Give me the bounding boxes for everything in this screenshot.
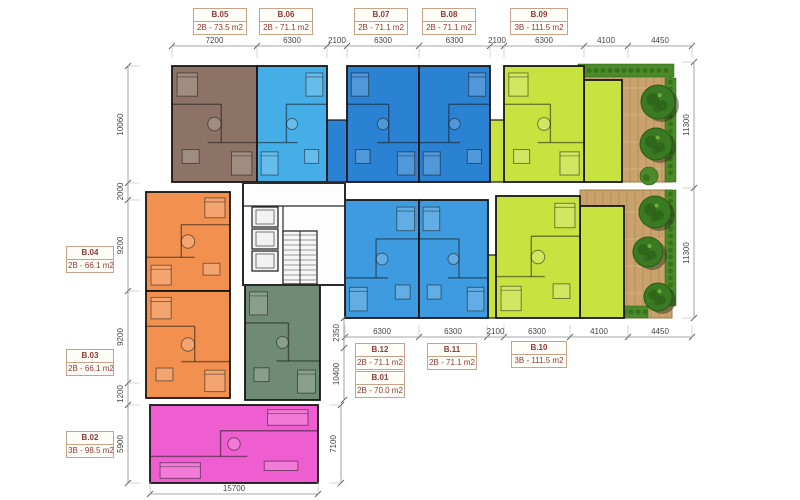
dim-label: 6300 bbox=[374, 36, 392, 45]
unit-id-label: B.05 bbox=[194, 9, 246, 21]
elevator-icon bbox=[252, 229, 278, 249]
unit-id-label: B.09 bbox=[511, 9, 567, 21]
dim-row-middle: 630063002100630041004450 bbox=[342, 325, 695, 340]
dim-label: 6300 bbox=[283, 36, 301, 45]
unit-callout-B.10: B.103B - 111.5 m2 bbox=[511, 341, 567, 368]
floor-plan-drawing: 7200630021006300630021006300410044506300… bbox=[0, 0, 800, 500]
unit-callout-B.02: B.023B - 98.5 m2 bbox=[66, 431, 114, 458]
dim-label: 7100 bbox=[329, 435, 338, 453]
dim-row-bottom: 15700 bbox=[147, 482, 321, 497]
unit-size-label: 2B - 71.1 m2 bbox=[356, 356, 404, 369]
unit-B.06 bbox=[257, 66, 327, 182]
service-core bbox=[243, 183, 345, 285]
bush-icon bbox=[640, 167, 658, 185]
unit-callout-B.06: B.062B - 71.1 m2 bbox=[259, 8, 313, 35]
unit-size-label: 3B - 98.5 m2 bbox=[67, 444, 113, 457]
unit-fill-block bbox=[327, 120, 347, 182]
unit-id-label: B.08 bbox=[423, 9, 475, 21]
unit-fill-block bbox=[490, 120, 504, 182]
dim-label: 4100 bbox=[597, 36, 615, 45]
unit-B.03 bbox=[146, 291, 230, 398]
dim-row-pink_right: 7100 bbox=[329, 402, 344, 486]
unit-callout-B.03: B.032B - 66.1 m2 bbox=[66, 349, 114, 376]
dim-label: 15700 bbox=[223, 484, 246, 493]
unit-id-label: B.06 bbox=[260, 9, 312, 21]
dim-label: 2100 bbox=[488, 36, 506, 45]
elevator-icon bbox=[252, 207, 278, 227]
unit-size-label: 2B - 71.1 m2 bbox=[260, 21, 312, 34]
unit-callout-B.12: B.122B - 71.1 m2 bbox=[355, 343, 405, 370]
unit-size-label: 2B - 71.1 m2 bbox=[428, 356, 476, 369]
dim-label: 4450 bbox=[651, 36, 669, 45]
stairs-icon bbox=[283, 231, 317, 284]
dim-label: 6300 bbox=[373, 327, 391, 336]
unit-size-label: 3B - 111.5 m2 bbox=[512, 354, 566, 367]
unit-id-label: B.02 bbox=[67, 432, 113, 444]
unit-callout-B.08: B.082B - 71.1 m2 bbox=[422, 8, 476, 35]
elevator-icon bbox=[252, 251, 278, 271]
unit-callout-B.11: B.112B - 71.1 m2 bbox=[427, 343, 477, 370]
unit-callout-B.07: B.072B - 71.1 m2 bbox=[354, 8, 408, 35]
floor-plan-canvas: 7200630021006300630021006300410044506300… bbox=[0, 0, 800, 500]
unit-callout-B.05: B.052B - 73.5 m2 bbox=[193, 8, 247, 35]
dim-label: 10400 bbox=[332, 362, 341, 385]
unit-B.10 bbox=[496, 196, 624, 318]
unit-B.04 bbox=[146, 192, 230, 291]
unit-callout-B.01: B.012B - 70.0 m2 bbox=[355, 371, 405, 398]
unit-B.02 bbox=[150, 405, 318, 483]
unit-B.01 bbox=[245, 285, 320, 400]
unit-fill-block bbox=[488, 255, 496, 318]
unit-id-label: B.11 bbox=[428, 344, 476, 356]
dim-label: 10060 bbox=[116, 113, 125, 136]
dim-label: 6300 bbox=[446, 36, 464, 45]
hedge bbox=[578, 64, 674, 77]
unit-size-label: 2B - 71.1 m2 bbox=[355, 21, 407, 34]
dim-label: 2350 bbox=[332, 324, 341, 342]
dim-row-right: 1130011300 bbox=[682, 59, 697, 321]
unit-B.11 bbox=[419, 200, 488, 318]
unit-B.05 bbox=[172, 66, 257, 182]
dim-label: 9200 bbox=[116, 236, 125, 254]
unit-size-label: 2B - 70.0 m2 bbox=[356, 384, 404, 397]
dim-label: 9200 bbox=[116, 328, 125, 346]
unit-id-label: B.07 bbox=[355, 9, 407, 21]
dim-row-left: 1006020009200920012005900 bbox=[116, 63, 140, 486]
dim-label: 4100 bbox=[590, 327, 608, 336]
unit-id-label: B.12 bbox=[356, 344, 404, 356]
unit-id-label: B.03 bbox=[67, 350, 113, 362]
unit-size-label: 3B - 111.5 m2 bbox=[511, 21, 567, 34]
unit-callout-B.09: B.093B - 111.5 m2 bbox=[510, 8, 568, 35]
unit-id-label: B.10 bbox=[512, 342, 566, 354]
dim-label: 6300 bbox=[535, 36, 553, 45]
unit-B.12 bbox=[345, 200, 419, 318]
unit-size-label: 2B - 73.5 m2 bbox=[194, 21, 246, 34]
unit-id-label: B.01 bbox=[356, 372, 404, 384]
unit-B.08 bbox=[419, 66, 490, 182]
dim-row-top: 720063002100630063002100630041004450 bbox=[169, 36, 695, 58]
dim-label: 11300 bbox=[682, 242, 691, 264]
dim-label: 2000 bbox=[116, 182, 125, 200]
unit-size-label: 2B - 66.1 m2 bbox=[67, 362, 113, 375]
unit-B.07 bbox=[347, 66, 419, 182]
dim-label: 11300 bbox=[682, 114, 691, 136]
unit-B.09 bbox=[504, 66, 622, 182]
dim-label: 2100 bbox=[487, 327, 505, 336]
unit-callout-B.04: B.042B - 66.1 m2 bbox=[66, 246, 114, 273]
unit-id-label: B.04 bbox=[67, 247, 113, 259]
dim-label: 6300 bbox=[528, 327, 546, 336]
unit-size-label: 2B - 71.1 m2 bbox=[423, 21, 475, 34]
dim-label: 7200 bbox=[206, 36, 224, 45]
dim-label: 6300 bbox=[444, 327, 462, 336]
dim-label: 5900 bbox=[116, 435, 125, 453]
dim-label: 2100 bbox=[328, 36, 346, 45]
dim-label: 1200 bbox=[116, 385, 125, 403]
unit-size-label: 2B - 66.1 m2 bbox=[67, 259, 113, 272]
dim-label: 4450 bbox=[651, 327, 669, 336]
